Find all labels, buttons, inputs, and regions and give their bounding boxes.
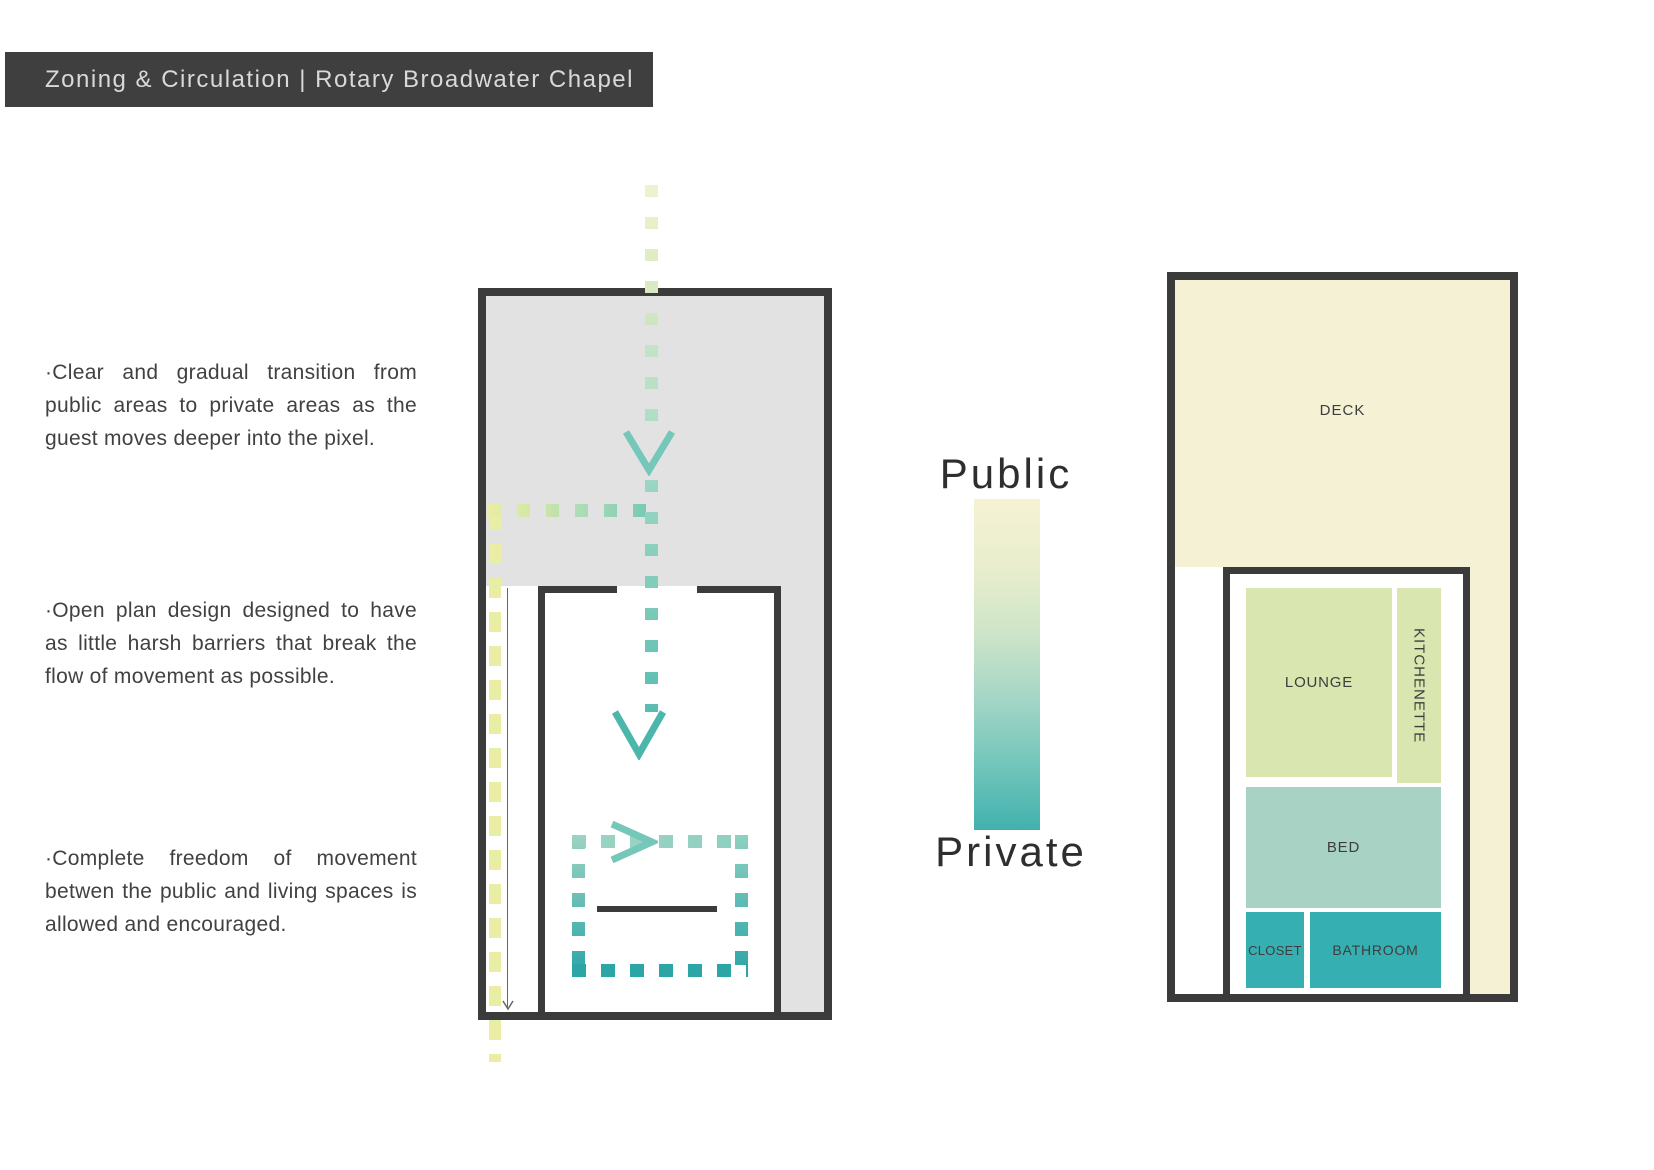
slide-canvas: Zoning & Circulation | Rotary Broadwater… [0, 0, 1654, 1170]
circulation-side-strip [781, 586, 824, 1012]
loop-path-bottom-dashed [572, 964, 748, 977]
room-bathroom: BATHROOM [1310, 912, 1441, 988]
note-transition: ·Clear and gradual transition from publi… [45, 356, 417, 455]
room-bed: BED [1246, 787, 1441, 908]
public-private-gradient-bar [974, 499, 1040, 830]
room-label-deck: DECK [1175, 402, 1510, 419]
room-lounge: LOUNGE [1246, 588, 1392, 777]
room-kitchenette: KITCHENETTE [1397, 588, 1441, 783]
note-freedom: ·Complete freedom of movement betwen the… [45, 842, 417, 941]
room-label-closet: CLOSET [1248, 943, 1302, 958]
bench-line [597, 906, 717, 912]
corridor-guide-line [507, 588, 508, 1008]
room-label-bed: BED [1327, 839, 1360, 856]
room-label-kitchenette: KITCHENETTE [1411, 628, 1428, 743]
inner-room-left-wall [538, 586, 545, 1012]
inner-room-top-wall-right [697, 586, 781, 593]
loop-path-left-dashed [572, 835, 585, 977]
public-path-vertical-dashed [489, 510, 501, 1062]
legend-public-label: Public [906, 450, 1106, 498]
zoning-corridor [1175, 567, 1223, 994]
room-label-lounge: LOUNGE [1285, 674, 1353, 691]
inner-room-right-wall [774, 586, 781, 1012]
inner-room-top-wall-left [538, 586, 617, 593]
room-closet: CLOSET [1246, 912, 1304, 988]
entry-path-lower-dashed [645, 480, 658, 712]
loop-path-right-dashed [735, 835, 748, 977]
title-bar: Zoning & Circulation | Rotary Broadwater… [5, 52, 653, 107]
page-title: Zoning & Circulation | Rotary Broadwater… [45, 66, 634, 94]
room-label-bathroom: BATHROOM [1332, 942, 1418, 958]
loop-path-top-dashed [572, 835, 748, 848]
legend-private-label: Private [906, 828, 1116, 876]
note-open-plan: ·Open plan design designed to have as li… [45, 594, 417, 693]
entry-path-upper-dashed [645, 185, 658, 430]
entry-path-horizontal-dashed [488, 504, 660, 517]
